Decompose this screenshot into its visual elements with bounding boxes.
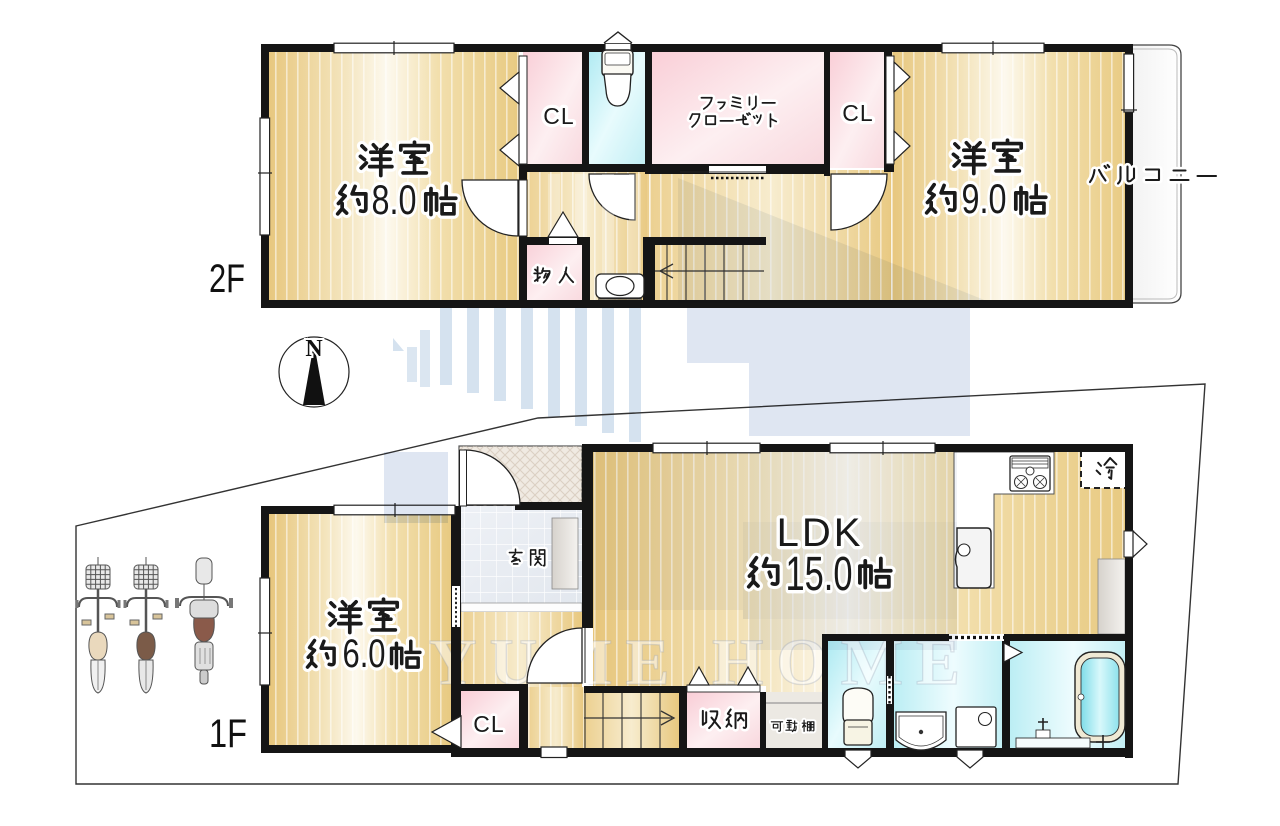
svg-text:1F: 1F (209, 712, 247, 756)
svg-text:9.0: 9.0 (962, 175, 1007, 222)
svg-text:15.0: 15.0 (786, 548, 853, 601)
svg-text:2F: 2F (209, 257, 245, 301)
svg-text:CL: CL (543, 103, 574, 129)
svg-text:8.0: 8.0 (372, 176, 417, 223)
svg-text:CL: CL (473, 711, 504, 737)
svg-text:6.0: 6.0 (343, 632, 386, 676)
svg-text:N: N (305, 336, 323, 362)
svg-text:CL: CL (842, 100, 873, 126)
